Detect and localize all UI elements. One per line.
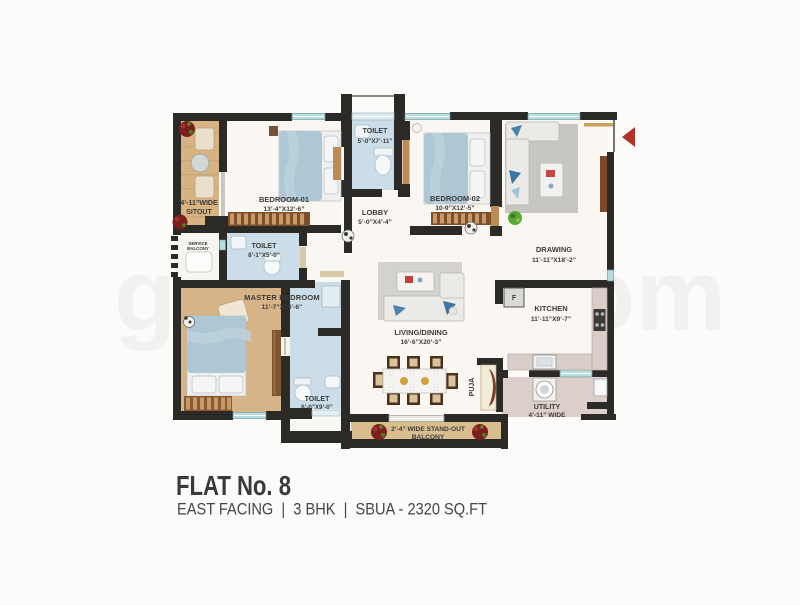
svg-text:11’-7”X14’-6”: 11’-7”X14’-6” xyxy=(262,304,303,311)
svg-text:LIVING/DINING: LIVING/DINING xyxy=(394,328,448,337)
svg-text:EAST FACING | 3 BHK | SBUA: EAST FACING | 3 BHK | SBUA - 2320 SQ.FT xyxy=(177,500,487,519)
svg-text:16’-6”X20’-3”: 16’-6”X20’-3” xyxy=(400,339,441,346)
svg-text:8’-1”X5’-0”: 8’-1”X5’-0” xyxy=(248,252,280,259)
svg-text:DRAWING: DRAWING xyxy=(536,245,572,254)
svg-text:2’-4” WIDE STAND-OUT: 2’-4” WIDE STAND-OUT xyxy=(391,426,465,433)
svg-text:11’-11”X18’-2”: 11’-11”X18’-2” xyxy=(532,257,576,264)
svg-text:PUJA: PUJA xyxy=(469,378,476,397)
svg-text:TOILET: TOILET xyxy=(305,396,330,403)
svg-text:BALCONY: BALCONY xyxy=(412,434,445,441)
svg-text:BEDROOM-01: BEDROOM-01 xyxy=(259,195,309,204)
svg-text:6’-0”X9’-0”: 6’-0”X9’-0” xyxy=(301,404,333,411)
svg-text:F: F xyxy=(512,295,517,302)
svg-text:UTILITY: UTILITY xyxy=(534,404,561,411)
svg-text:LOBBY: LOBBY xyxy=(362,208,388,217)
svg-text:BALCONY: BALCONY xyxy=(187,246,209,251)
svg-text:4’-11”WIDE: 4’-11”WIDE xyxy=(180,200,218,207)
svg-text:MASTER BEDROOM: MASTER BEDROOM xyxy=(244,293,320,302)
svg-text:TOILET: TOILET xyxy=(363,128,388,135)
svg-text:11’-11”X9’-7”: 11’-11”X9’-7” xyxy=(531,316,571,323)
svg-text:BEDROOM-02: BEDROOM-02 xyxy=(430,194,480,203)
svg-text:FLAT No. 8: FLAT No. 8 xyxy=(176,470,291,501)
svg-text:5’-0”X7’-11”: 5’-0”X7’-11” xyxy=(358,138,393,145)
svg-text:13’-4”X12’-6”: 13’-4”X12’-6” xyxy=(263,206,304,213)
svg-text:10-9”X12’-5”: 10-9”X12’-5” xyxy=(435,205,474,212)
svg-text:4’-11” WIDE: 4’-11” WIDE xyxy=(528,412,566,419)
svg-text:TOILET: TOILET xyxy=(252,243,277,250)
svg-text:5’-0”X4’-4”: 5’-0”X4’-4” xyxy=(358,219,392,226)
svg-text:SITOUT: SITOUT xyxy=(186,209,212,216)
svg-text:KITCHEN: KITCHEN xyxy=(534,304,567,313)
